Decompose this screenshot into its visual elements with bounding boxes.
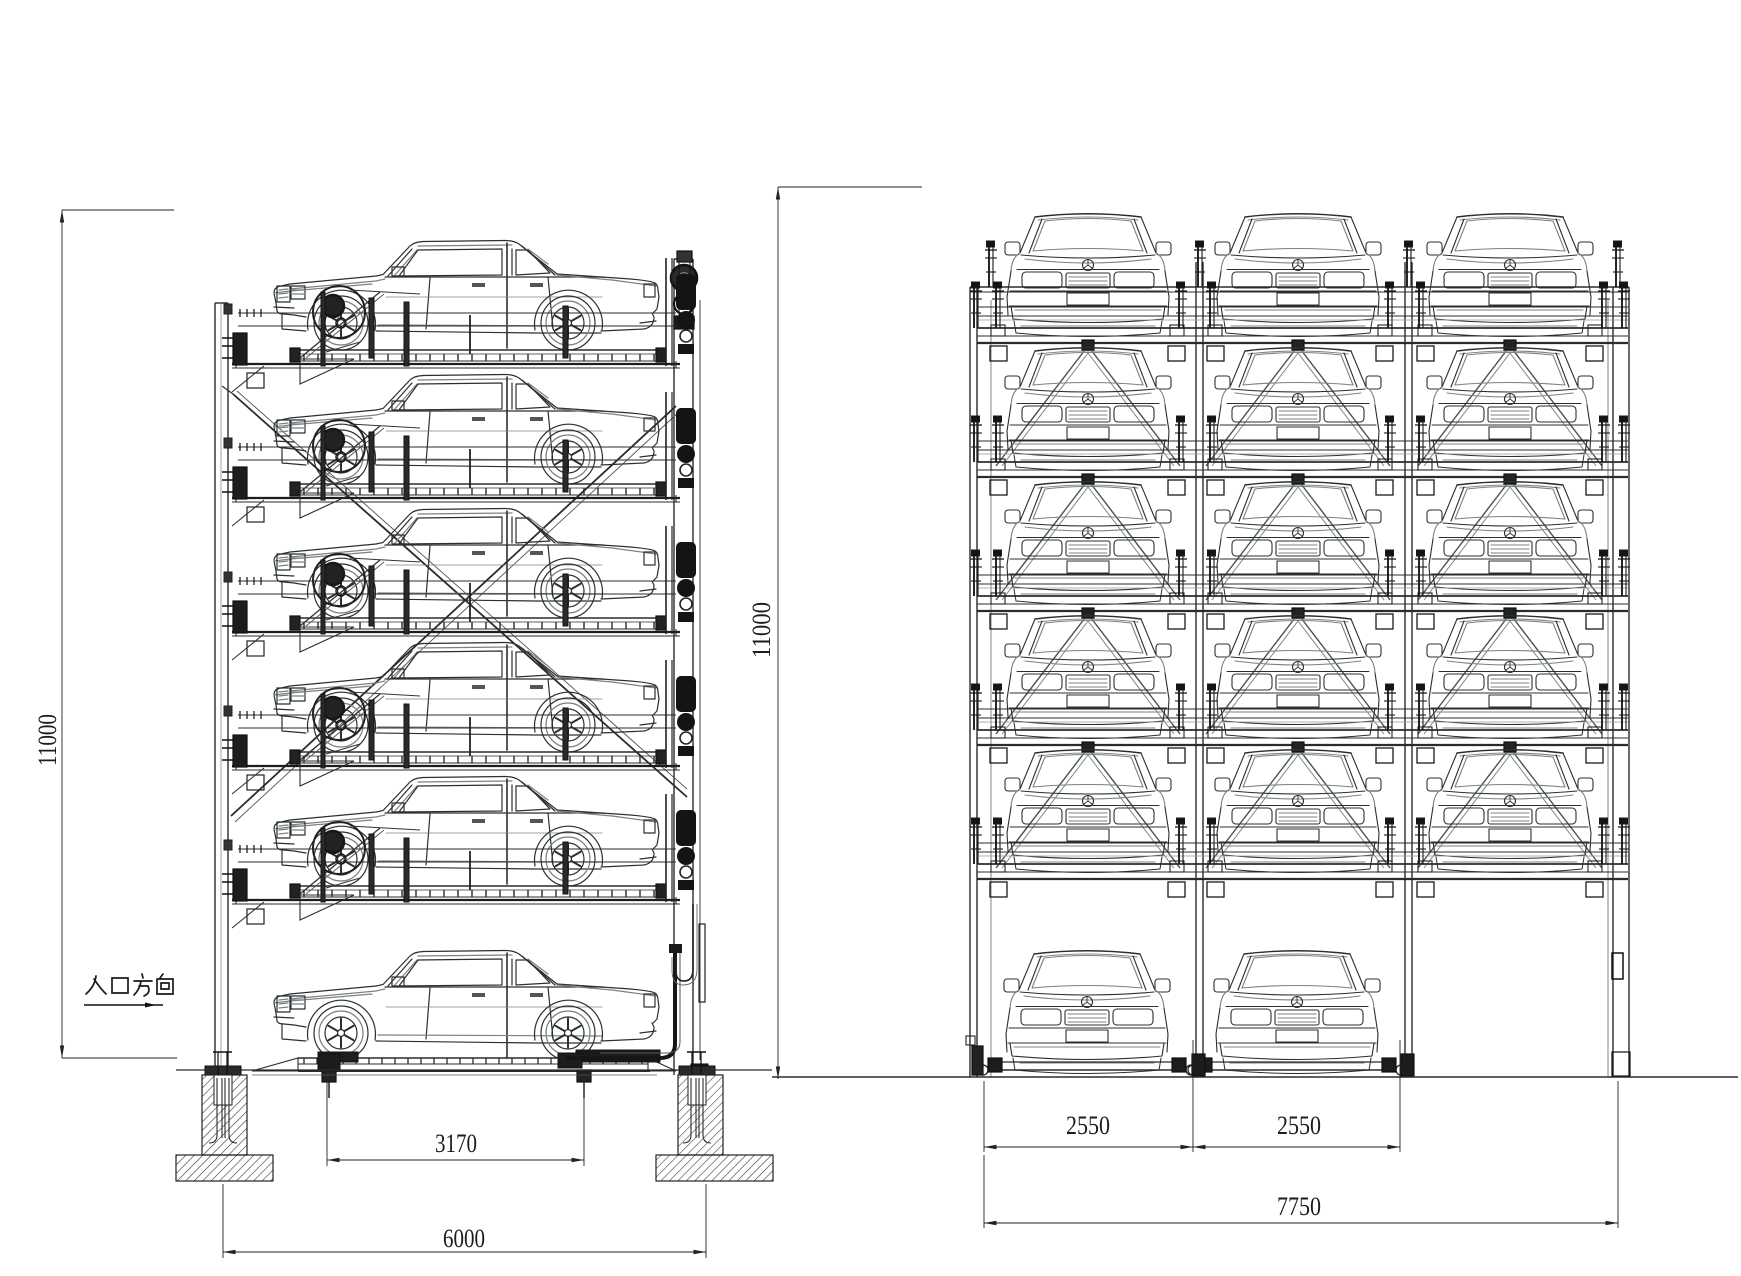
svg-text:6000: 6000 — [443, 1224, 485, 1253]
svg-text:11000: 11000 — [33, 714, 62, 766]
svg-text:3170: 3170 — [435, 1129, 477, 1158]
svg-text:11000: 11000 — [747, 602, 776, 658]
svg-text:2550: 2550 — [1277, 1111, 1321, 1140]
svg-text:7750: 7750 — [1277, 1192, 1321, 1221]
svg-text:2550: 2550 — [1066, 1111, 1110, 1140]
